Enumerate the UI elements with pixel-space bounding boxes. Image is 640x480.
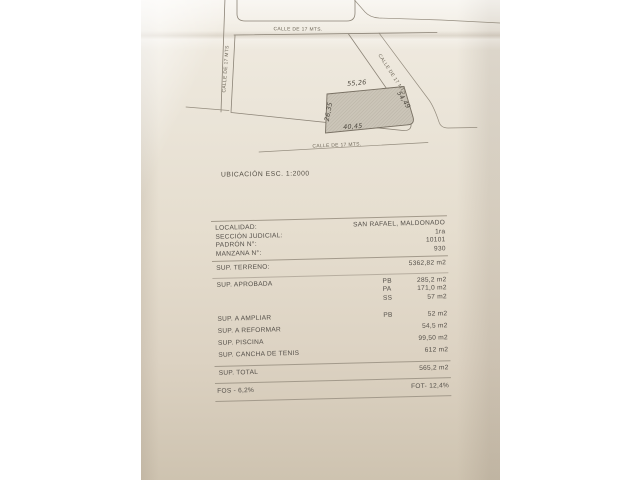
street-line-top: [234, 33, 437, 36]
row-value: 54,5 m2: [422, 320, 448, 333]
street-line-left-extension: [186, 107, 229, 111]
fot-value: FOT- 12,4%: [411, 379, 449, 393]
level-code: SS: [383, 294, 393, 303]
row-value: 1ra: [435, 228, 445, 237]
row-value: 52 m2: [428, 308, 448, 320]
street-label-top: CALLE DE 17 MTS.: [273, 26, 322, 33]
row-label: SUP. TERRENO:: [214, 264, 270, 274]
row-value: 5362,82 m2: [409, 259, 447, 268]
row-label: MANZANA N°:: [214, 249, 262, 259]
sub-row: SS 57 m2: [383, 293, 447, 303]
location-map: CALLE DE 17 MTS. CALLE DE 17 MTS CALLE D…: [141, 0, 500, 168]
level-code: PB: [382, 277, 392, 286]
document-photo: CALLE DE 17 MTS. CALLE DE 17 MTS CALLE D…: [141, 0, 500, 480]
block-outline-top: [237, 0, 355, 21]
row-label: SUP. CANCHA DE TENIS: [216, 348, 299, 362]
row-value: 57 m2: [427, 293, 447, 302]
aprobada-values: PB 285,2 m2 PA 171,0 m2 SS 57 m2: [382, 276, 447, 303]
row-value: 99,50 m2: [418, 332, 448, 345]
surface-data-table: LOCALIDAD: SAN RAFAEL, MALDONADO SECCIÓN…: [211, 215, 451, 402]
row-label: SUP. APROBADA: [214, 280, 273, 307]
fos-value: FOS - 6,2%: [217, 384, 254, 398]
level-code: PB: [383, 310, 393, 322]
plot-dimension-bottom: 40,45: [343, 122, 363, 131]
map-caption: UBICACIÓN ESC. 1:2000: [221, 170, 310, 178]
row-value: 565,2 m2: [419, 361, 449, 376]
street-label-bottom: CALLE DE 17 MTS.: [312, 141, 361, 149]
row-value: 930: [434, 245, 446, 254]
row-label: SUP. A REFORMAR: [216, 324, 282, 338]
block-outline-top-right: [351, 0, 500, 23]
table-row-terreno: SUP. TERRENO: 5362,82 m2: [214, 259, 446, 273]
level-code: PA: [383, 286, 392, 295]
row-value: 612 m2: [425, 344, 449, 357]
plot-dimension-top: 55,26: [347, 78, 367, 88]
row-label: SUP. TOTAL: [217, 366, 259, 381]
